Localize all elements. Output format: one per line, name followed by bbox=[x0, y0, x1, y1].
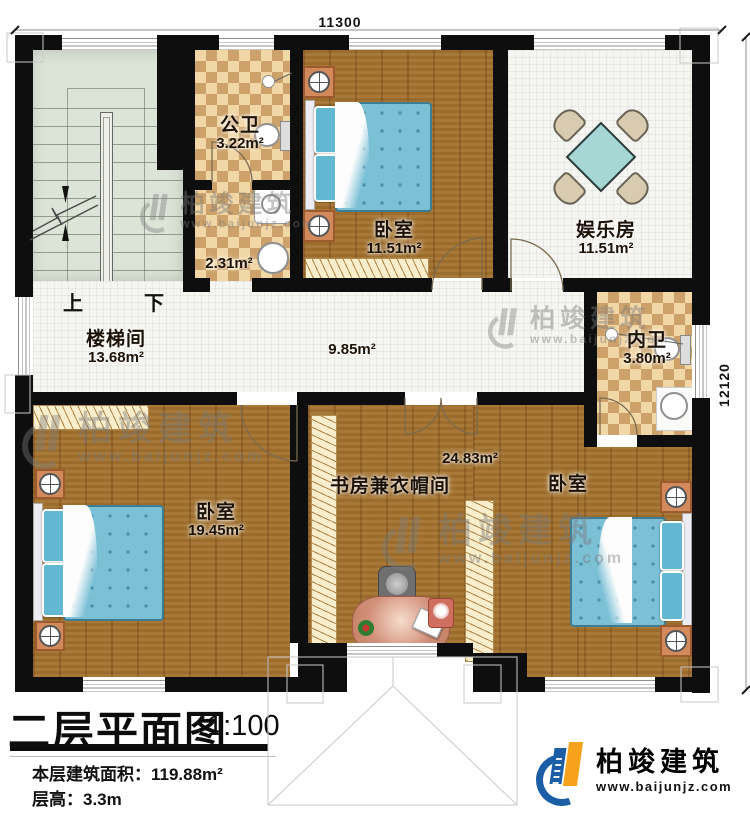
floorplan-page: 柏竣建筑 www.baijunjz.com 柏竣建筑 www.baijunjz.… bbox=[0, 0, 750, 817]
room-label-bedroom-top: 卧室 11.51m² bbox=[366, 221, 421, 258]
room-label-bedroom-right: 卧室 bbox=[548, 475, 588, 494]
stair-up-label: 上 bbox=[63, 287, 83, 316]
door-private-bath bbox=[600, 398, 637, 435]
room-label-study: 书房兼衣帽间 bbox=[330, 477, 450, 496]
room-area: 3.80m² bbox=[623, 350, 671, 368]
room-label-bedroom-left: 卧室 19.45m² bbox=[188, 503, 244, 540]
lamp-leads bbox=[275, 73, 683, 344]
roof-hip-lines bbox=[268, 657, 517, 805]
door-bedroom-left bbox=[241, 405, 297, 461]
room-label-stairwell: 楼梯间 13.68m² bbox=[86, 330, 146, 367]
room-area: 24.83m² bbox=[442, 450, 498, 468]
room-name: 卧室 bbox=[188, 503, 244, 522]
room-name: 楼梯间 bbox=[86, 330, 146, 349]
brand-text: 柏竣建筑 www.baijunjz.com bbox=[596, 749, 732, 794]
room-label-entertainment: 娱乐房 11.51m² bbox=[576, 221, 636, 258]
room-name: 娱乐房 bbox=[576, 221, 636, 240]
room-label-private-bath: 内卫 3.80m² bbox=[623, 331, 671, 368]
room-label-hallway: 9.85m² bbox=[328, 341, 376, 359]
double-door-study bbox=[405, 398, 477, 434]
dimension-right: 12120 bbox=[716, 363, 732, 407]
annotations-layer bbox=[0, 0, 750, 817]
room-area: 11.51m² bbox=[366, 240, 421, 258]
brand-logo-icon bbox=[536, 742, 588, 800]
stair-down-label: 下 bbox=[144, 287, 164, 316]
brand-name: 柏竣建筑 bbox=[596, 749, 732, 776]
room-area: 11.51m² bbox=[576, 240, 636, 258]
room-label-public-bath: 公卫 3.22m² bbox=[216, 116, 264, 153]
dimension-top: 11300 bbox=[318, 14, 361, 30]
room-name: 卧室 bbox=[366, 221, 421, 240]
brand-logo: 柏竣建筑 www.baijunjz.com bbox=[536, 742, 732, 800]
room-name: 内卫 bbox=[623, 331, 671, 350]
door-bedroom-top bbox=[432, 238, 482, 290]
door-entertainment bbox=[511, 239, 563, 291]
stair-direction-arrows bbox=[62, 186, 69, 241]
room-name: 书房兼衣帽间 bbox=[330, 477, 450, 496]
room-name: 公卫 bbox=[216, 116, 264, 135]
brand-url: www.baijunjz.com bbox=[596, 779, 732, 794]
room-area: 13.68m² bbox=[86, 349, 146, 367]
room-area: 9.85m² bbox=[328, 341, 376, 359]
room-area: 2.31m² bbox=[205, 255, 253, 273]
ghost-outlines bbox=[5, 28, 718, 805]
room-area: 19.45m² bbox=[188, 522, 244, 540]
room-name: 卧室 bbox=[548, 475, 588, 494]
room-label-study-area: 24.83m² bbox=[442, 450, 498, 468]
door-arcs bbox=[212, 142, 637, 461]
room-area: 3.22m² bbox=[216, 135, 264, 153]
room-label-corridor: 2.31m² bbox=[205, 255, 253, 273]
